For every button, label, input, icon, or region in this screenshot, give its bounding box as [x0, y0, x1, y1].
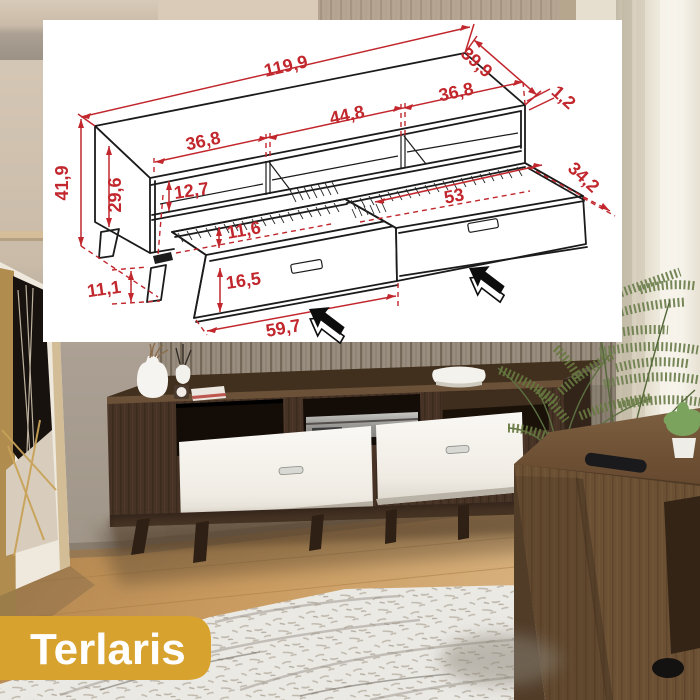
svg-text:Terlaris: Terlaris	[30, 625, 186, 674]
svg-text:29,6: 29,6	[105, 177, 125, 212]
svg-text:41,9: 41,9	[52, 165, 72, 200]
svg-text:53: 53	[442, 184, 465, 207]
